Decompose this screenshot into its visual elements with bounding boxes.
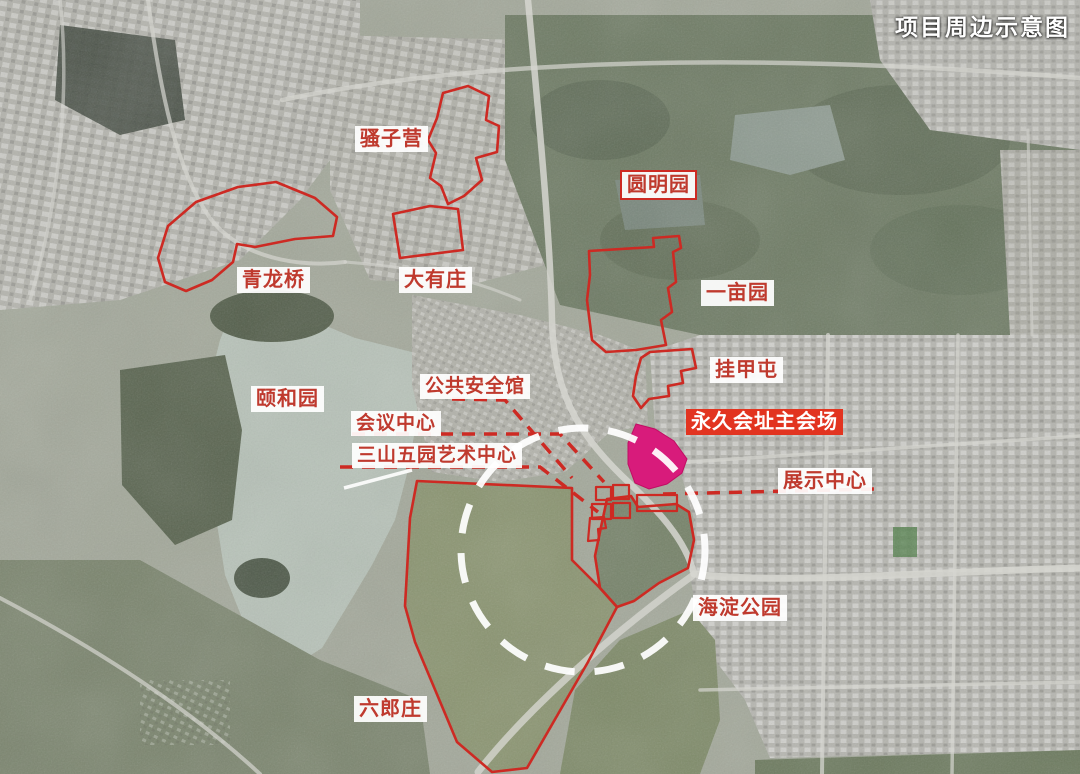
callout-label-exhibition-center: 展示中心 xyxy=(778,468,872,494)
area-label-guajiatun: 挂甲屯 xyxy=(710,357,783,383)
area-label-yiheyuan: 颐和园 xyxy=(251,386,324,412)
project-surroundings-map: 项目周边示意图 骚子营 圆明园 青龙桥 大有庄 一亩园 挂甲屯 颐和园 公共安全… xyxy=(0,0,1080,774)
callout-label-public-safety-hall: 公共安全馆 xyxy=(420,374,530,399)
satellite-map-canvas xyxy=(0,0,1080,774)
area-label-yimuyuan: 一亩园 xyxy=(701,280,774,306)
area-label-saoziying: 骚子营 xyxy=(355,126,428,152)
area-label-liulangzhuang: 六郎庄 xyxy=(354,696,427,722)
area-label-dayouzhuang: 大有庄 xyxy=(399,267,472,293)
banner-label-permanent-main-venue: 永久会址主会场 xyxy=(686,409,843,435)
callout-label-conference-center: 会议中心 xyxy=(351,411,441,436)
area-label-haidian-park: 海淀公园 xyxy=(693,595,787,621)
callout-label-art-center: 三山五园艺术中心 xyxy=(352,443,522,468)
map-title: 项目周边示意图 xyxy=(895,8,1070,42)
area-label-yuanmingyuan: 圆明园 xyxy=(620,170,697,200)
area-label-qinglongqiao: 青龙桥 xyxy=(237,267,310,293)
